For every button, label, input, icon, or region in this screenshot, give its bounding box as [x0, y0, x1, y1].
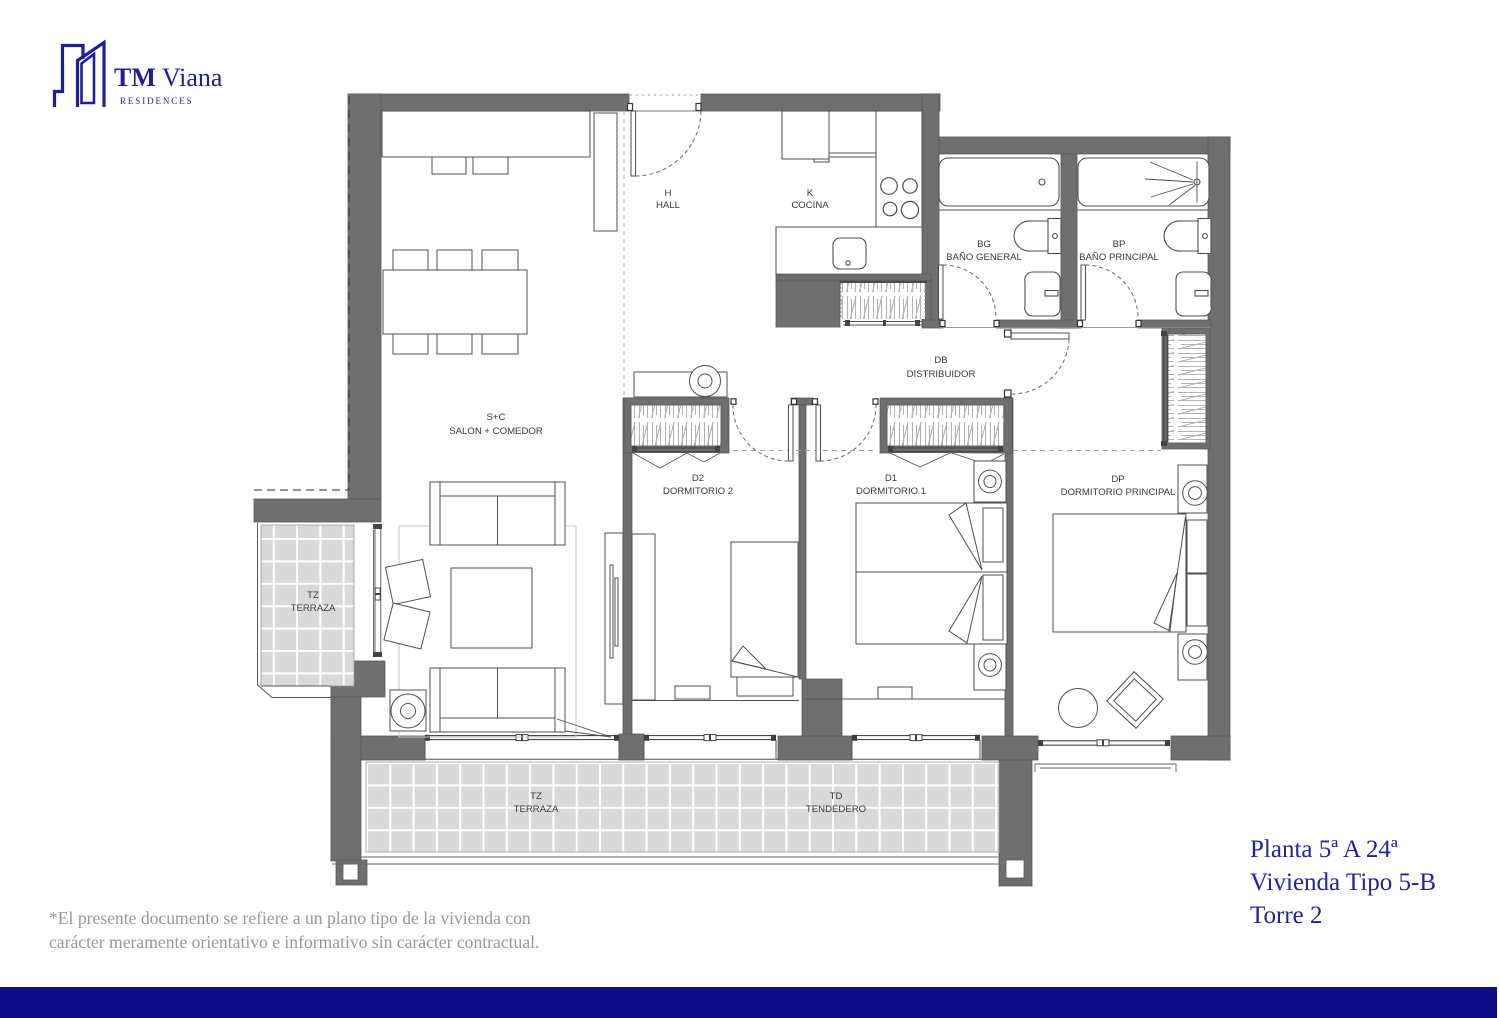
svg-text:carácter meramente orientativo: carácter meramente orientativo e informa…	[49, 932, 539, 952]
svg-text:COCINA: COCINA	[791, 200, 829, 211]
svg-text:H: H	[665, 188, 672, 199]
svg-text:TZ: TZ	[307, 590, 319, 601]
svg-text:S+C: S+C	[487, 412, 506, 423]
svg-text:BAÑO PRINCIPAL: BAÑO PRINCIPAL	[1079, 252, 1159, 263]
svg-text:D2: D2	[692, 473, 704, 484]
svg-text:TM Viana: TM Viana	[114, 63, 223, 92]
svg-text:BG: BG	[977, 239, 991, 250]
svg-text:BAÑO GENERAL: BAÑO GENERAL	[946, 252, 1022, 263]
svg-text:HALL: HALL	[656, 200, 681, 211]
svg-text:DISTRIBUIDOR: DISTRIBUIDOR	[907, 369, 976, 380]
svg-text:DORMITORIO 1: DORMITORIO 1	[856, 486, 926, 497]
svg-text:DORMITORIO PRINCIPAL: DORMITORIO PRINCIPAL	[1061, 487, 1176, 498]
svg-text:BP: BP	[1113, 239, 1126, 250]
svg-text:DP: DP	[1111, 474, 1124, 485]
svg-text:Planta 5ª A 24ª: Planta 5ª A 24ª	[1250, 836, 1398, 863]
svg-text:Vivienda Tipo 5-B: Vivienda Tipo 5-B	[1250, 869, 1436, 896]
svg-text:K: K	[807, 188, 814, 199]
svg-text:RESIDENCES: RESIDENCES	[120, 96, 194, 106]
svg-text:DB: DB	[934, 355, 947, 366]
svg-text:DORMITORIO 2: DORMITORIO 2	[663, 486, 733, 497]
svg-text:TD: TD	[830, 791, 843, 802]
svg-text:TZ: TZ	[530, 791, 542, 802]
svg-text:SALON + COMEDOR: SALON + COMEDOR	[449, 426, 543, 437]
svg-text:*El presente documento se refi: *El presente documento se refiere a un p…	[49, 908, 531, 928]
svg-text:TENDEDERO: TENDEDERO	[806, 804, 866, 815]
svg-text:TERRAZA: TERRAZA	[291, 603, 336, 614]
svg-text:Torre 2: Torre 2	[1250, 902, 1323, 929]
svg-text:D1: D1	[885, 473, 897, 484]
svg-text:TERRAZA: TERRAZA	[514, 804, 559, 815]
